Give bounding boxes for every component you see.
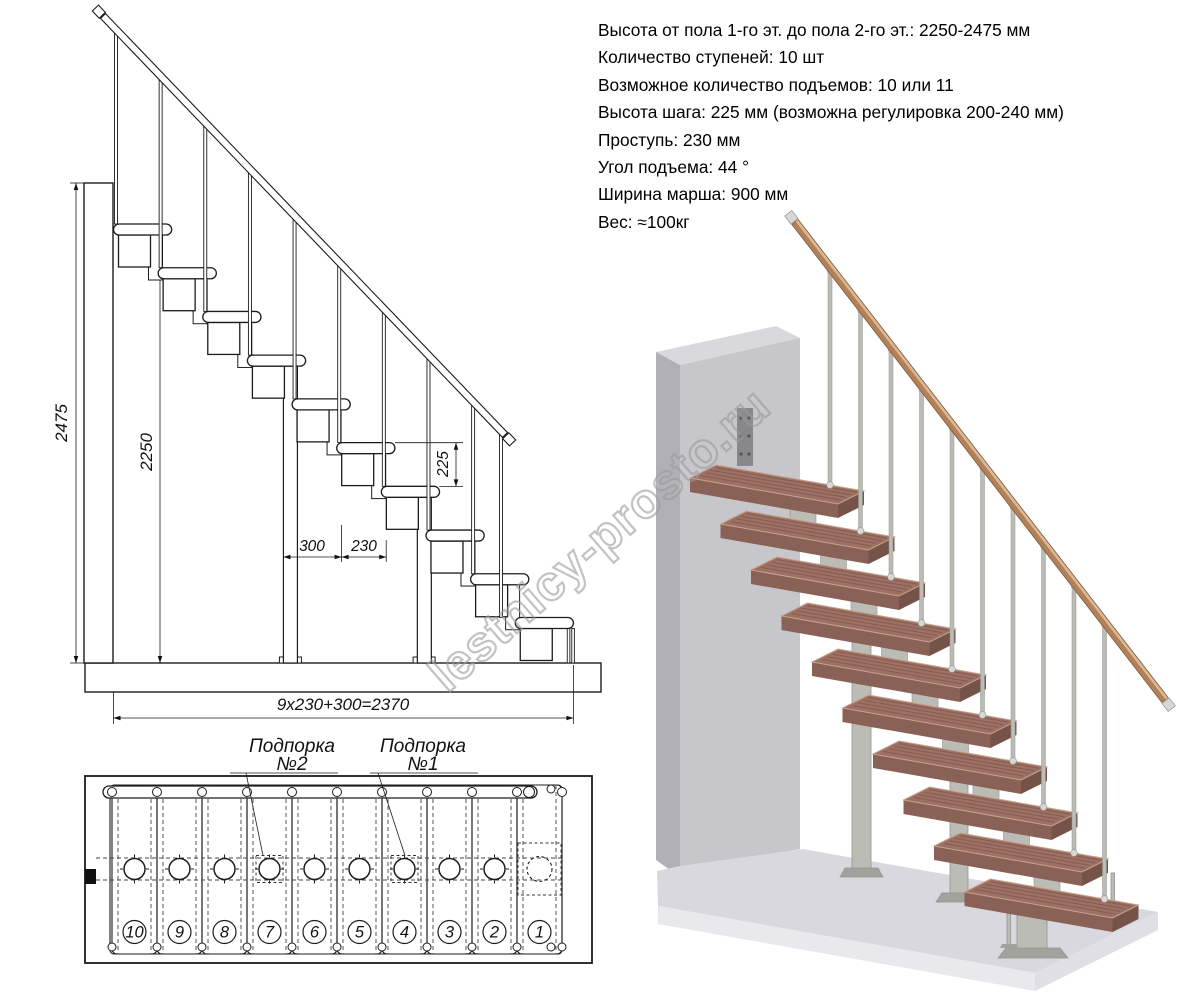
dim-total-run: 9x230+300=2370 [277, 695, 410, 714]
spec-line: Вес: ≈100кг [598, 209, 1186, 236]
dim-depth: 300 [299, 538, 325, 555]
support2-number: №2 [276, 754, 308, 775]
page: 2475 2250 225 300 230 9x230+300=2370 Под… [0, 0, 1191, 993]
dim-height-total: 2475 [52, 404, 71, 443]
spec-line: Количество ступеней: 10 шт [598, 44, 1186, 71]
side-view-geometry [70, 5, 601, 724]
step-number: 5 [355, 924, 365, 942]
step-number: 8 [220, 924, 230, 942]
spec-line: Высота от пола 1-го эт. до пола 2-го эт.… [598, 17, 1186, 44]
dim-rise: 225 [435, 451, 452, 478]
side-view-drawing: 2475 2250 225 300 230 9x230+300=2370 [0, 0, 620, 745]
dim-height-steps: 2250 [137, 433, 156, 472]
spec-line: Угол подъема: 44 ° [598, 154, 1186, 181]
step-number: 3 [445, 924, 455, 942]
step-number: 9 [175, 924, 184, 942]
staircase-3d-render [640, 200, 1191, 993]
spec-line: Проступь: 230 мм [598, 127, 1186, 154]
spec-line: Возможное количество подъемов: 10 или 11 [598, 72, 1186, 99]
step-number: 2 [489, 924, 499, 942]
render-3d-geometry [656, 211, 1175, 991]
spec-line: Высота шага: 225 мм (возможна регулировк… [598, 99, 1186, 126]
plan-view-drawing: Подпорка №2 Подпорка №1 10 9 8 7 6 5 4 3… [70, 726, 610, 992]
dim-run: 230 [350, 538, 377, 555]
step-number: 6 [310, 924, 320, 942]
spec-panel: Высота от пола 1-го эт. до пола 2-го эт.… [598, 17, 1186, 236]
step-number: 1 [535, 924, 544, 942]
step-number: 10 [125, 924, 144, 942]
support1-number: №1 [407, 754, 438, 775]
spec-line: Ширина марша: 900 мм [598, 181, 1186, 208]
step-number: 4 [400, 924, 409, 942]
step-number: 7 [265, 924, 275, 942]
plan-view-geometry [85, 773, 592, 963]
